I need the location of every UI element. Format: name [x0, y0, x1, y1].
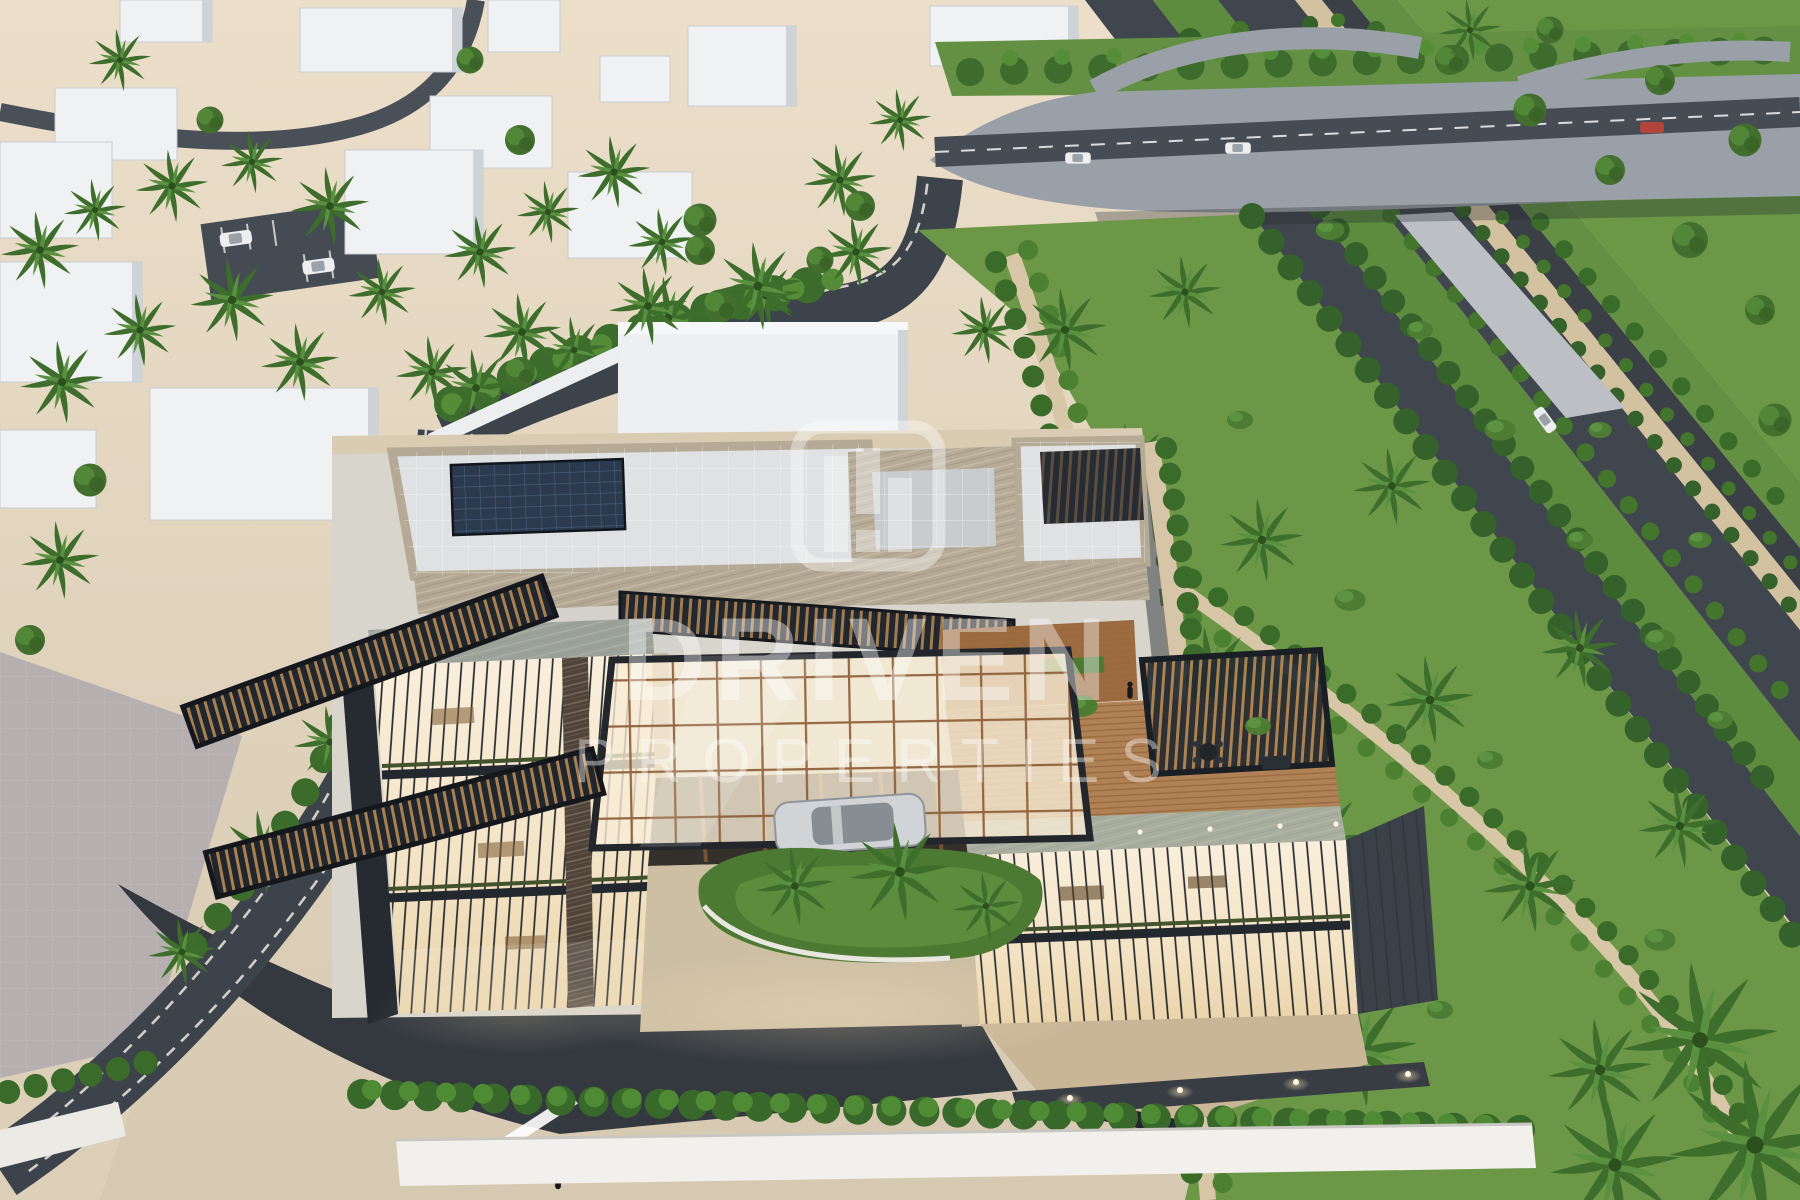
- person-on-terrace: [1127, 682, 1132, 699]
- roof-penthouse: [848, 446, 1016, 572]
- highway-interchange: [930, 26, 1800, 228]
- terrace-sofa: [1262, 755, 1291, 769]
- red-car: [1640, 122, 1664, 133]
- aerial-render-image: DRIVEN PROPERTIES: [0, 0, 1800, 1200]
- terrace-pergola: [1142, 650, 1332, 774]
- silver-car: [773, 793, 926, 855]
- car: [1225, 142, 1251, 153]
- terrace-table: [1199, 743, 1217, 761]
- render-scene: [0, 0, 1800, 1200]
- car: [1065, 152, 1091, 163]
- solar-panel-array: [451, 459, 625, 535]
